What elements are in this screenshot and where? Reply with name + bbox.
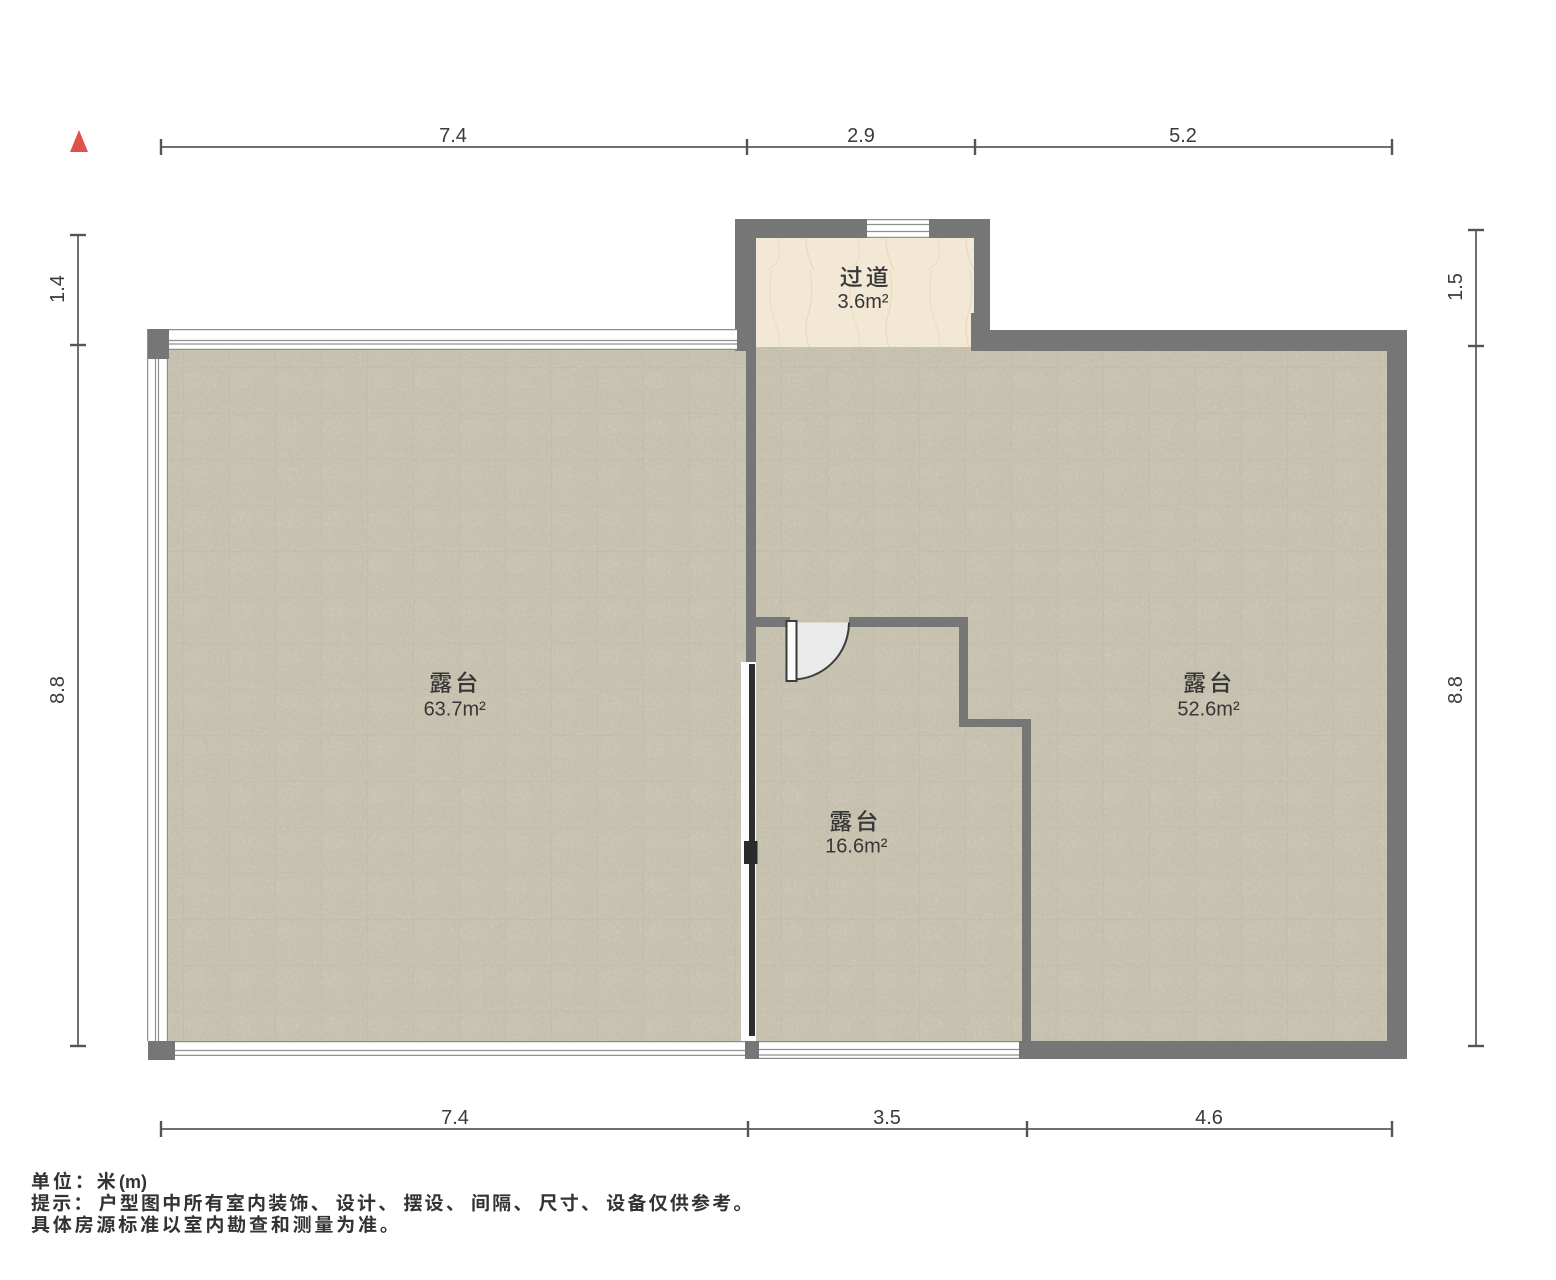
svg-text:4.6: 4.6 [1195,1107,1223,1129]
svg-text:1.5: 1.5 [1445,273,1467,301]
svg-text:52.6m²: 52.6m² [1177,699,1240,721]
svg-text:7.4: 7.4 [439,125,467,147]
svg-text:(m): (m) [119,1172,147,1192]
svg-text:7.4: 7.4 [441,1107,469,1129]
svg-text:16.6m²: 16.6m² [825,836,888,858]
svg-text:5.2: 5.2 [1169,125,1197,147]
svg-text:3.6m²: 3.6m² [837,291,888,313]
svg-text:8.8: 8.8 [1445,676,1467,704]
svg-text:8.8: 8.8 [47,676,69,704]
svg-text:1.4: 1.4 [47,275,69,303]
svg-text:2.9: 2.9 [847,125,875,147]
svg-text:3.5: 3.5 [873,1107,901,1129]
svg-text:63.7m²: 63.7m² [424,698,487,720]
